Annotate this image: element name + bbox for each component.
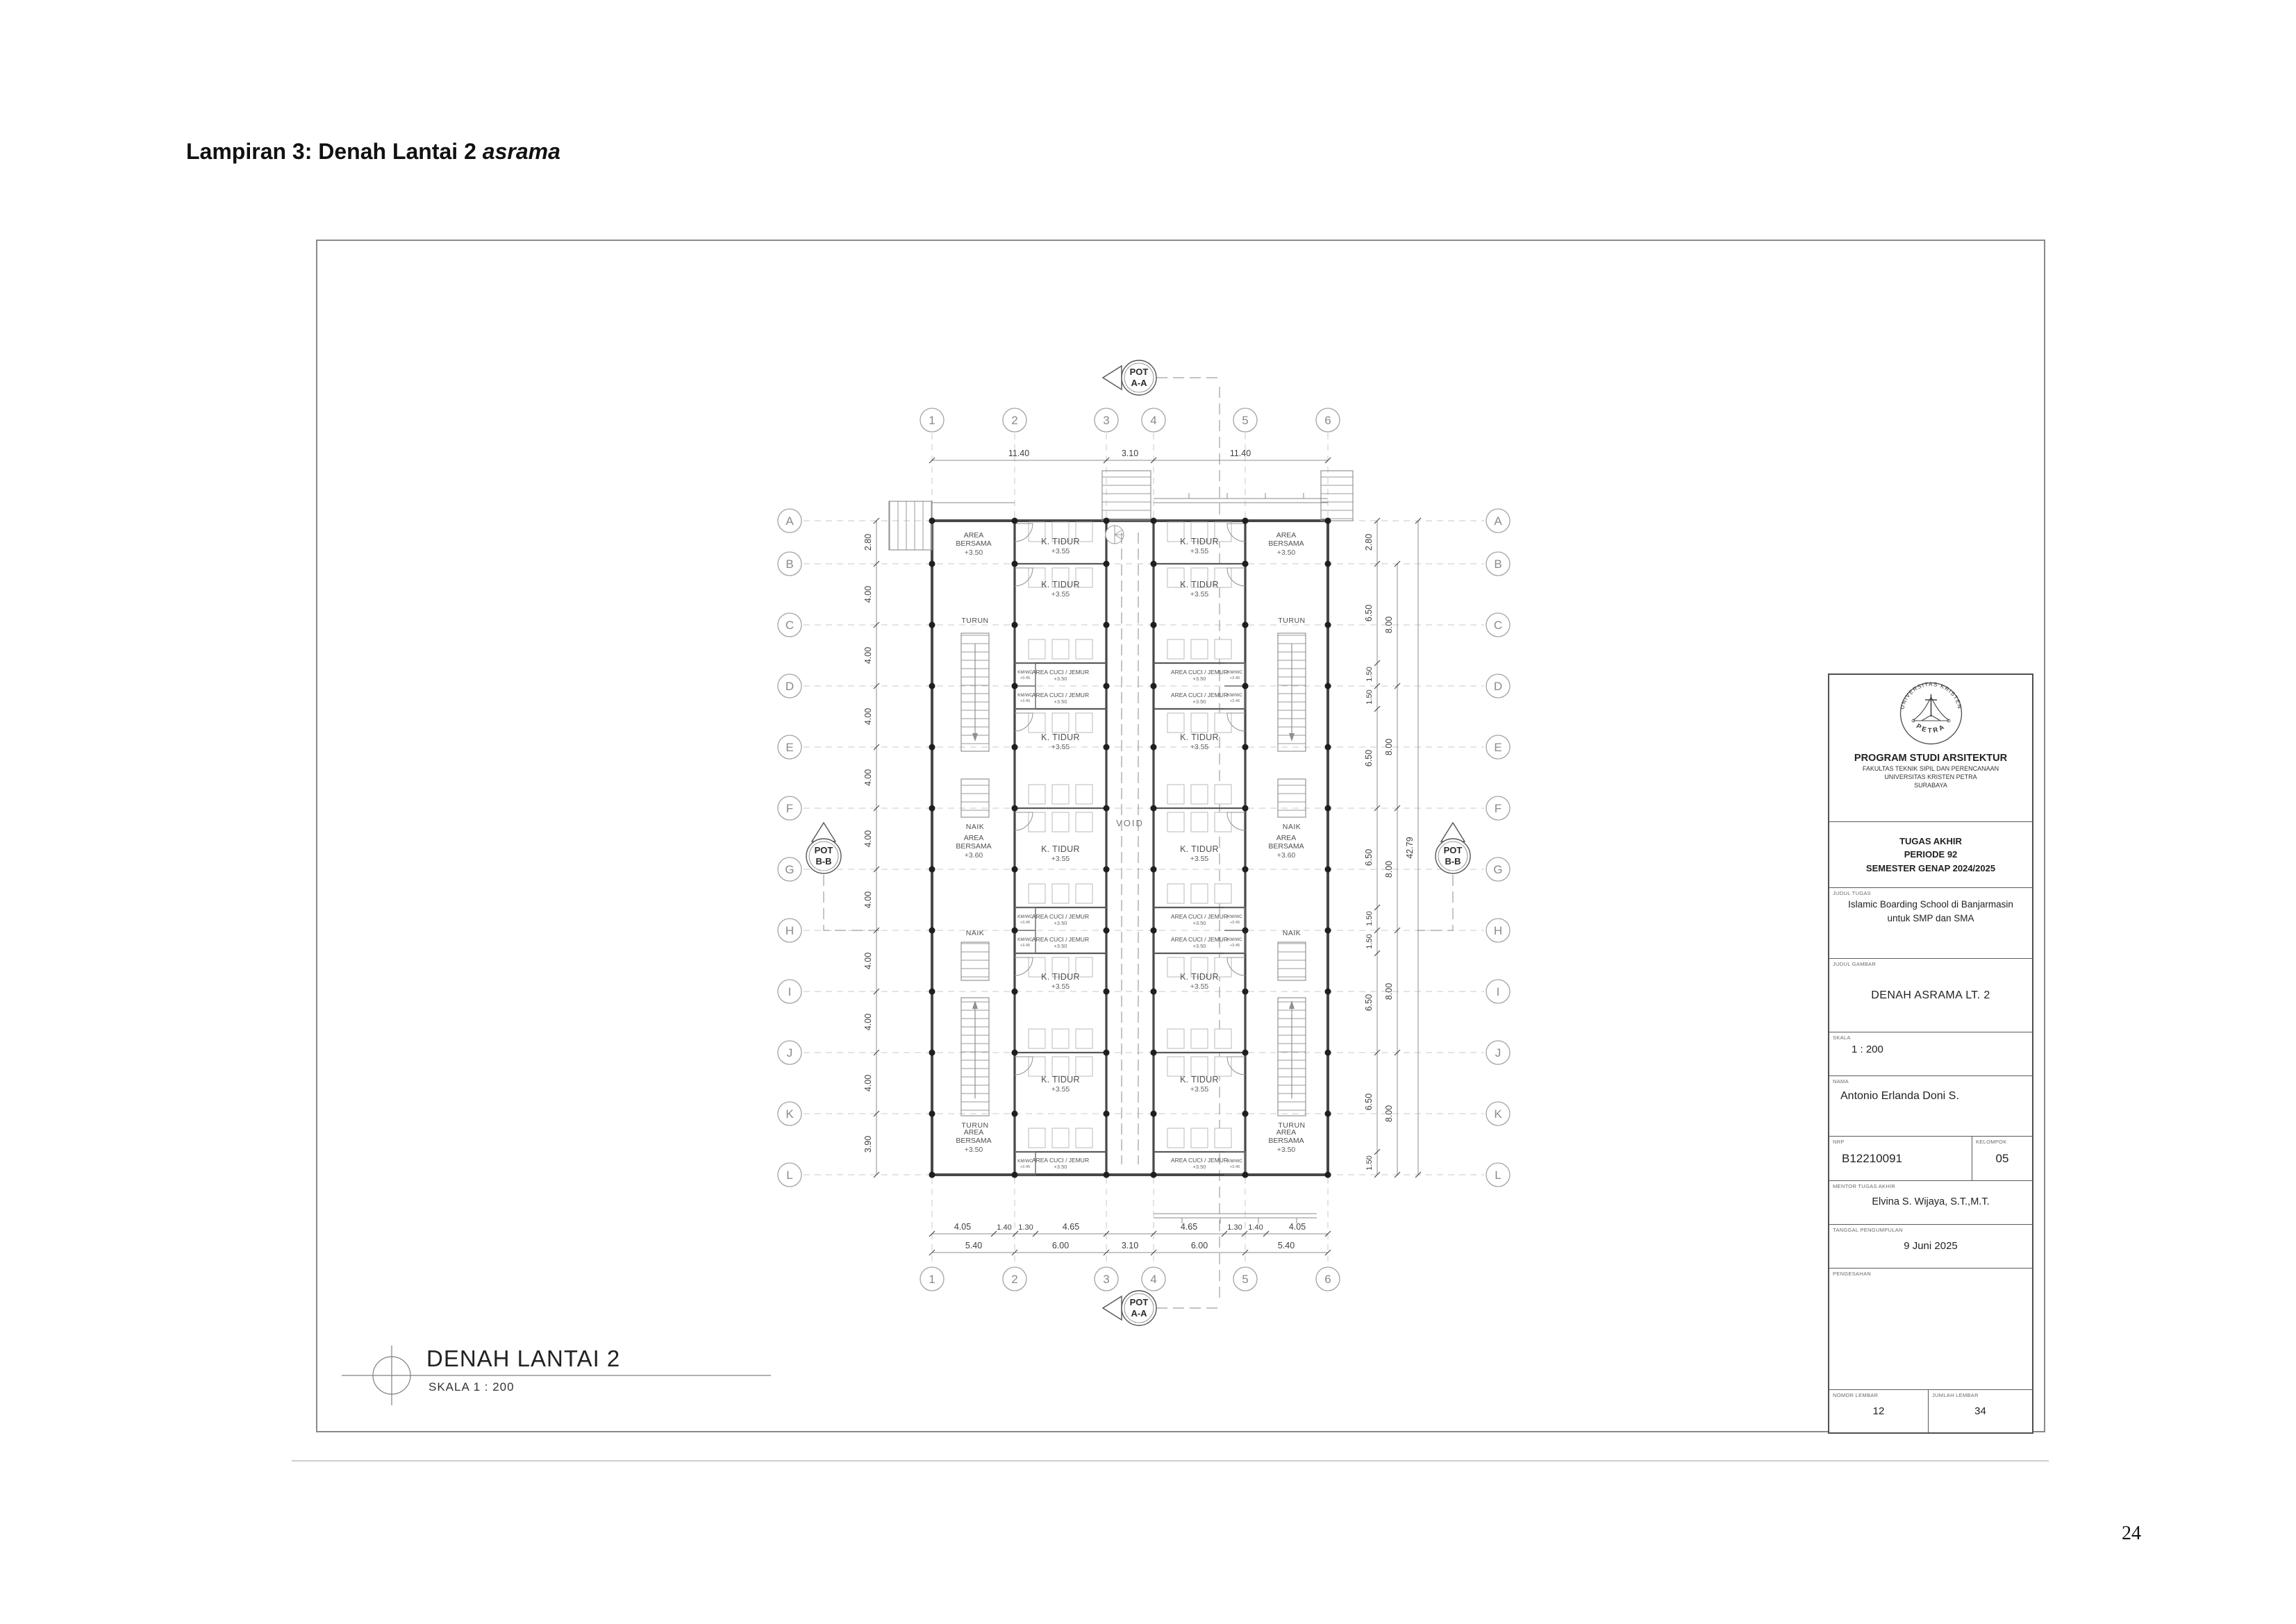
bathroom-label: KM/WC xyxy=(1227,937,1242,942)
laundry-level: +3.50 xyxy=(1054,698,1067,705)
drawing-scale-text: SKALA 1 : 200 xyxy=(429,1380,515,1394)
field-label: TANGGAL PENGUMPULAN xyxy=(1833,1227,1903,1233)
page-number: 24 xyxy=(2122,1523,2141,1545)
field-mentor: MENTOR TUGAS AKHIR Elvina S. Wijaya, S.T… xyxy=(1829,1181,2032,1225)
grid-bubble-label: K xyxy=(1494,1107,1502,1121)
stair-direction-label: NAIK xyxy=(966,929,985,937)
area-level: +3.50 xyxy=(1277,549,1296,557)
dim-label: 1.50 xyxy=(1365,911,1374,926)
grid-bubble-label: G xyxy=(785,863,794,876)
stair-direction-label: TURUN xyxy=(961,1121,988,1130)
laundry-level: +3.50 xyxy=(1193,676,1206,682)
dim-label: 4.00 xyxy=(863,1014,873,1030)
area-level: +3.50 xyxy=(965,1146,983,1154)
laundry-level: +3.50 xyxy=(1193,943,1206,949)
dim-label: 4.00 xyxy=(863,647,873,664)
bathroom-level: +3.45 xyxy=(1230,1165,1240,1169)
grid-bubble-label: 5 xyxy=(1242,1273,1248,1286)
section-marker-label: POT xyxy=(1130,1297,1149,1307)
dim-label: 4.05 xyxy=(954,1222,971,1232)
bathroom-label: KM/WC xyxy=(1017,914,1033,919)
dim-label: 11.40 xyxy=(1008,449,1029,458)
svg-text:PETRA: PETRA xyxy=(1914,723,1947,735)
tugas-akhir-text: TUGAS AKHIR xyxy=(1866,835,1995,848)
room-level: +3.55 xyxy=(1190,855,1209,863)
laundry-level: +3.50 xyxy=(1054,676,1067,682)
section-marker-label: B-B xyxy=(1445,856,1461,867)
program-studi-text: PROGRAM STUDI ARSITEKTUR xyxy=(1829,753,2032,764)
room-label: K. TIDUR xyxy=(1180,537,1219,546)
laundry-label: AREA CUCI / JEMUR xyxy=(1032,936,1089,943)
dimension-labels: 11.40 3.10 11.40 4.05 1.40 1.30 4.65 4.6… xyxy=(863,449,1415,1250)
bathroom-label: KM/WC xyxy=(1227,693,1242,698)
room-label: K. TIDUR xyxy=(1180,580,1219,589)
dim-label: 4.65 xyxy=(1063,1222,1079,1232)
kota-text: SURABAYA xyxy=(1829,782,2032,789)
area-label: BERSAMA xyxy=(956,539,991,548)
field-value: B12210091 xyxy=(1829,1137,1972,1166)
laundry-label: AREA CUCI / JEMUR xyxy=(1032,1157,1089,1164)
dim-label: 6.50 xyxy=(1364,605,1374,621)
room-level: +3.55 xyxy=(1051,590,1070,598)
dim-label: 8.00 xyxy=(1384,861,1394,878)
dim-label: 3.90 xyxy=(863,1136,873,1153)
grid-bubble-label: E xyxy=(785,741,793,754)
bed-furniture xyxy=(1029,522,1231,1148)
laundry-label: AREA CUCI / JEMUR xyxy=(1032,913,1089,920)
field-value: 1 : 200 xyxy=(1829,1032,2032,1055)
area-label: AREA xyxy=(1276,531,1297,539)
laundry-level: +3.50 xyxy=(1193,920,1206,926)
field-judul-tugas: JUDUL TUGAS Islamic Boarding School di B… xyxy=(1829,888,2032,959)
field-label: NRP xyxy=(1833,1139,1845,1145)
grid-bubble-label: 2 xyxy=(1011,1273,1017,1286)
dim-label: 1.50 xyxy=(1365,1155,1374,1170)
grid-bubble-label: G xyxy=(1493,863,1502,876)
dim-label: 4.65 xyxy=(1181,1222,1197,1232)
bathroom-level: +3.45 xyxy=(1020,1165,1031,1169)
stair-direction-label: TURUN xyxy=(961,617,988,625)
dim-label: 3.10 xyxy=(1122,1241,1138,1250)
dim-label: 1.50 xyxy=(1365,667,1374,681)
dim-label: 4.00 xyxy=(863,586,873,603)
area-level: +3.50 xyxy=(965,549,983,557)
dim-label: 4.00 xyxy=(863,769,873,786)
grid-bubble-label: A xyxy=(785,514,794,528)
section-marker-label: POT xyxy=(1130,367,1149,377)
area-label: AREA xyxy=(1276,834,1297,842)
room-level: +3.55 xyxy=(1190,590,1209,598)
grid-bubble-label: I xyxy=(1497,985,1500,998)
dim-label: 6.00 xyxy=(1191,1241,1208,1250)
dim-label: 6.00 xyxy=(1052,1241,1069,1250)
door-swings xyxy=(1015,524,1245,1075)
dim-label: 8.00 xyxy=(1384,1105,1394,1122)
area-label: AREA xyxy=(964,834,984,842)
laundry-level: +3.50 xyxy=(1054,1164,1067,1170)
dim-label: 8.00 xyxy=(1384,739,1394,755)
room-label: K. TIDUR xyxy=(1041,972,1080,982)
dim-label: 4.00 xyxy=(863,830,873,847)
grid-bubble-label: 3 xyxy=(1103,414,1109,427)
bathroom-label: KM/WC xyxy=(1227,1159,1242,1164)
area-level: +3.50 xyxy=(1277,1146,1296,1154)
bathroom-level: +3.45 xyxy=(1230,676,1240,680)
dim-label: 1.40 xyxy=(997,1223,1011,1232)
grid-bubble-label: D xyxy=(1494,680,1502,693)
field-label: JUMLAH LEMBAR xyxy=(1932,1392,1979,1398)
dim-label: 6.50 xyxy=(1364,1094,1374,1110)
dim-label: 11.40 xyxy=(1230,449,1251,458)
dim-label: 6.50 xyxy=(1364,994,1374,1011)
section-marker-bb-left: POT B-B xyxy=(806,823,841,873)
dim-label: 4.00 xyxy=(863,708,873,725)
grid-bubble-label: D xyxy=(785,680,794,693)
universitas-text: UNIVERSITAS KRISTEN PETRA xyxy=(1829,773,2032,780)
bathroom-level: +3.45 xyxy=(1020,676,1031,680)
dim-label: 1.40 xyxy=(1248,1223,1263,1232)
room-level: +3.55 xyxy=(1190,547,1209,555)
dim-label: 1.30 xyxy=(1227,1223,1242,1232)
room-level: +3.55 xyxy=(1051,982,1070,991)
fakultas-text: FAKULTAS TEKNIK SIPIL DAN PERENCANAAN xyxy=(1829,765,2032,772)
laundry-level: +3.50 xyxy=(1193,1164,1206,1170)
section-marker-label: POT xyxy=(1444,845,1463,855)
dim-label: 4.05 xyxy=(1289,1222,1306,1232)
laundry-label: AREA CUCI / JEMUR xyxy=(1032,692,1089,698)
field-nama: NAMA Antonio Erlanda Doni S. xyxy=(1829,1076,2032,1137)
field-pengesahan: PENGESAHAN xyxy=(1829,1269,2032,1390)
grid-bubble-label: 3 xyxy=(1103,1273,1109,1286)
stair-direction-label: TURUN xyxy=(1278,1121,1305,1130)
area-label: BERSAMA xyxy=(1268,1137,1304,1145)
page-heading: Lampiran 3: Denah Lantai 2 asrama xyxy=(186,139,560,165)
grid-bubble-label: C xyxy=(1494,619,1502,632)
stair-blocks xyxy=(889,471,1353,1116)
room-level: +3.55 xyxy=(1190,982,1209,991)
periode-text: PERIODE 92 xyxy=(1866,848,1995,862)
area-label: BERSAMA xyxy=(1268,539,1304,548)
grid-bubble-label: L xyxy=(1495,1169,1501,1182)
bathroom-level: +3.45 xyxy=(1020,699,1031,703)
bathroom-level: +3.45 xyxy=(1230,944,1240,948)
grid-bubble-label: F xyxy=(786,802,793,815)
room-level: +3.55 xyxy=(1190,743,1209,751)
title-block-institution: UNIVERSITAS KRISTEN PETRA PROGRAM STUDI … xyxy=(1829,675,2032,822)
grid-bubble-label: 6 xyxy=(1324,1273,1331,1286)
floor-plan-drawing: 11.40 3.10 11.40 4.05 1.40 1.30 4.65 4.6… xyxy=(731,335,1599,1341)
grid-bubble-label: F xyxy=(1495,802,1501,815)
dim-label: 5.40 xyxy=(965,1241,982,1250)
bathroom-level: +3.45 xyxy=(1230,699,1240,703)
room-label: K. TIDUR xyxy=(1041,537,1080,546)
dim-label: 4.00 xyxy=(863,891,873,908)
room-level: +3.55 xyxy=(1190,1085,1209,1094)
drawing-title-text: DENAH LANTAI 2 xyxy=(426,1346,620,1372)
room-label: K. TIDUR xyxy=(1041,1075,1080,1085)
heading-italic-text: asrama xyxy=(483,139,560,164)
bathroom-label: KM/WC xyxy=(1017,693,1033,698)
area-label: AREA xyxy=(964,531,984,539)
semester-text: SEMESTER GENAP 2024/2025 xyxy=(1866,862,1995,876)
dim-label: 6.50 xyxy=(1364,750,1374,767)
section-marker-aa-bottom: POT A-A xyxy=(1103,1291,1156,1325)
footer-divider xyxy=(292,1460,2049,1462)
spiral-stair xyxy=(1106,526,1124,544)
title-block-project: TUGAS AKHIR PERIODE 92 SEMESTER GENAP 20… xyxy=(1829,822,2032,888)
laundry-level: +3.50 xyxy=(1054,920,1067,926)
grid-bubble-label: 6 xyxy=(1324,414,1331,427)
room-label: K. TIDUR xyxy=(1180,972,1219,982)
dim-label: 4.00 xyxy=(863,1075,873,1091)
field-skala: SKALA 1 : 200 xyxy=(1829,1032,2032,1076)
stair-direction-label: NAIK xyxy=(966,823,985,831)
grid-bubble-label: 4 xyxy=(1150,414,1156,427)
grid-bubble-label: B xyxy=(785,558,793,571)
laundry-label: AREA CUCI / JEMUR xyxy=(1171,692,1228,698)
field-judul-gambar: JUDUL GAMBAR DENAH ASRAMA LT. 2 xyxy=(1829,959,2032,1032)
grid-bubble-label: E xyxy=(1494,741,1501,754)
grid-bubble-label: H xyxy=(785,924,794,937)
laundry-label: AREA CUCI / JEMUR xyxy=(1171,669,1228,676)
dim-label: 8.00 xyxy=(1384,983,1394,1000)
section-marker-label: A-A xyxy=(1131,378,1147,388)
grid-bubble-label: 1 xyxy=(929,414,935,427)
field-label: NOMOR LEMBAR xyxy=(1833,1392,1878,1398)
laundry-level: +3.50 xyxy=(1193,698,1206,705)
field-nrp-kelompok: NRP B12210091 KELOMPOK 05 xyxy=(1829,1137,2032,1181)
grid-bubble-label: L xyxy=(786,1169,792,1182)
void-label: VOID xyxy=(1116,818,1144,828)
title-block: UNIVERSITAS KRISTEN PETRA PROGRAM STUDI … xyxy=(1828,673,2033,1434)
stair-direction-label: NAIK xyxy=(1283,929,1301,937)
laundry-label: AREA CUCI / JEMUR xyxy=(1171,1157,1228,1164)
grid-bubble-label: 5 xyxy=(1242,414,1248,427)
field-label: KELOMPOK xyxy=(1976,1139,2007,1145)
room-labels: K. TIDUR+3.55 K. TIDUR+3.55 K. TIDUR+3.5… xyxy=(956,531,1305,1170)
grid-bubble-label: A xyxy=(1494,514,1502,528)
dim-label: 1.50 xyxy=(1365,934,1374,948)
grid-bubble-label: 4 xyxy=(1150,1273,1156,1286)
grid-bubble-label: J xyxy=(787,1046,793,1060)
room-level: +3.55 xyxy=(1051,743,1070,751)
room-label: K. TIDUR xyxy=(1041,733,1080,742)
logo-arc-text: PETRA xyxy=(1914,723,1947,735)
field-label: NAMA xyxy=(1833,1078,1849,1085)
field-tanggal: TANGGAL PENGUMPULAN 9 Juni 2025 xyxy=(1829,1225,2032,1269)
section-marker-label: A-A xyxy=(1131,1308,1147,1319)
bathroom-label: KM/WC xyxy=(1017,937,1033,942)
grid-bubble-label: 2 xyxy=(1011,414,1017,427)
room-level: +3.55 xyxy=(1051,855,1070,863)
dim-label: 6.50 xyxy=(1364,849,1374,866)
laundry-label: AREA CUCI / JEMUR xyxy=(1171,936,1228,943)
section-marker-aa-top: POT A-A xyxy=(1103,360,1156,395)
dim-label: 42.79 xyxy=(1405,837,1415,858)
dim-label: 1.50 xyxy=(1365,689,1374,704)
room-label: K. TIDUR xyxy=(1180,733,1219,742)
grid-bubble-label: I xyxy=(788,985,792,998)
laundry-label: AREA CUCI / JEMUR xyxy=(1032,669,1089,676)
area-level: +3.60 xyxy=(1277,851,1296,860)
grid-bubbles: 1 2 3 4 5 6 1 2 3 4 5 6 A B C D E F G H xyxy=(778,408,1510,1291)
field-label: JUDUL GAMBAR xyxy=(1833,961,1876,967)
area-level: +3.60 xyxy=(965,851,983,860)
bathroom-label: KM/WC xyxy=(1227,914,1242,919)
dim-label: 4.00 xyxy=(863,953,873,969)
dim-label: 2.80 xyxy=(1364,534,1374,551)
section-marker-bb-right: POT B-B xyxy=(1436,823,1470,873)
grid-bubble-label: B xyxy=(1494,558,1501,571)
grid-bubble-label: J xyxy=(1495,1046,1501,1060)
section-marker-label: B-B xyxy=(815,856,831,867)
area-label: BERSAMA xyxy=(956,1137,991,1145)
room-label: K. TIDUR xyxy=(1180,1075,1219,1085)
room-label: K. TIDUR xyxy=(1180,844,1219,854)
field-value: DENAH ASRAMA LT. 2 xyxy=(1829,959,2032,1032)
field-value: Antonio Erlanda Doni S. xyxy=(1829,1076,2032,1103)
dimension-lines xyxy=(874,458,1421,1255)
drawing-sheet: 11.40 3.10 11.40 4.05 1.40 1.30 4.65 4.6… xyxy=(316,240,2045,1432)
bathroom-label: KM/WC xyxy=(1017,670,1033,675)
room-label: K. TIDUR xyxy=(1041,580,1080,589)
grid-lines xyxy=(804,433,1484,1265)
bathroom-label: KM/WC xyxy=(1017,1159,1033,1164)
field-label: MENTOR TUGAS AKHIR xyxy=(1833,1183,1895,1189)
grid-bubble-label: 1 xyxy=(929,1273,935,1286)
bathroom-level: +3.45 xyxy=(1020,944,1031,948)
document-page: Lampiran 3: Denah Lantai 2 asrama xyxy=(0,0,2296,1624)
stair-direction-label: TURUN xyxy=(1278,617,1305,625)
laundry-level: +3.50 xyxy=(1054,943,1067,949)
dim-label: 2.80 xyxy=(863,534,873,551)
dim-label: 8.00 xyxy=(1384,617,1394,633)
field-label: JUDUL TUGAS xyxy=(1833,890,1871,896)
bathroom-level: +3.45 xyxy=(1230,921,1240,925)
room-label: K. TIDUR xyxy=(1041,844,1080,854)
grid-bubble-label: C xyxy=(785,619,794,632)
stair-direction-label: NAIK xyxy=(1283,823,1301,831)
grid-bubble-label: K xyxy=(785,1107,794,1121)
dim-label: 1.30 xyxy=(1018,1223,1033,1232)
field-label: PENGESAHAN xyxy=(1833,1271,1871,1277)
room-level: +3.55 xyxy=(1051,1085,1070,1094)
area-label: BERSAMA xyxy=(956,842,991,851)
bathroom-label: KM/WC xyxy=(1227,670,1242,675)
heading-text: Lampiran 3: Denah Lantai 2 xyxy=(186,139,483,164)
dim-label: 5.40 xyxy=(1278,1241,1295,1250)
university-logo-icon: UNIVERSITAS KRISTEN PETRA xyxy=(1898,680,1964,746)
dim-label: 3.10 xyxy=(1122,449,1138,458)
area-label: BERSAMA xyxy=(1268,842,1304,851)
section-marker-label: POT xyxy=(815,845,833,855)
room-level: +3.55 xyxy=(1051,547,1070,555)
field-lembar: NOMOR LEMBAR 12 JUMLAH LEMBAR 34 xyxy=(1829,1390,2032,1432)
bathroom-level: +3.45 xyxy=(1020,921,1031,925)
laundry-label: AREA CUCI / JEMUR xyxy=(1171,913,1228,920)
field-label: SKALA xyxy=(1833,1035,1851,1041)
grid-bubble-label: H xyxy=(1494,924,1502,937)
